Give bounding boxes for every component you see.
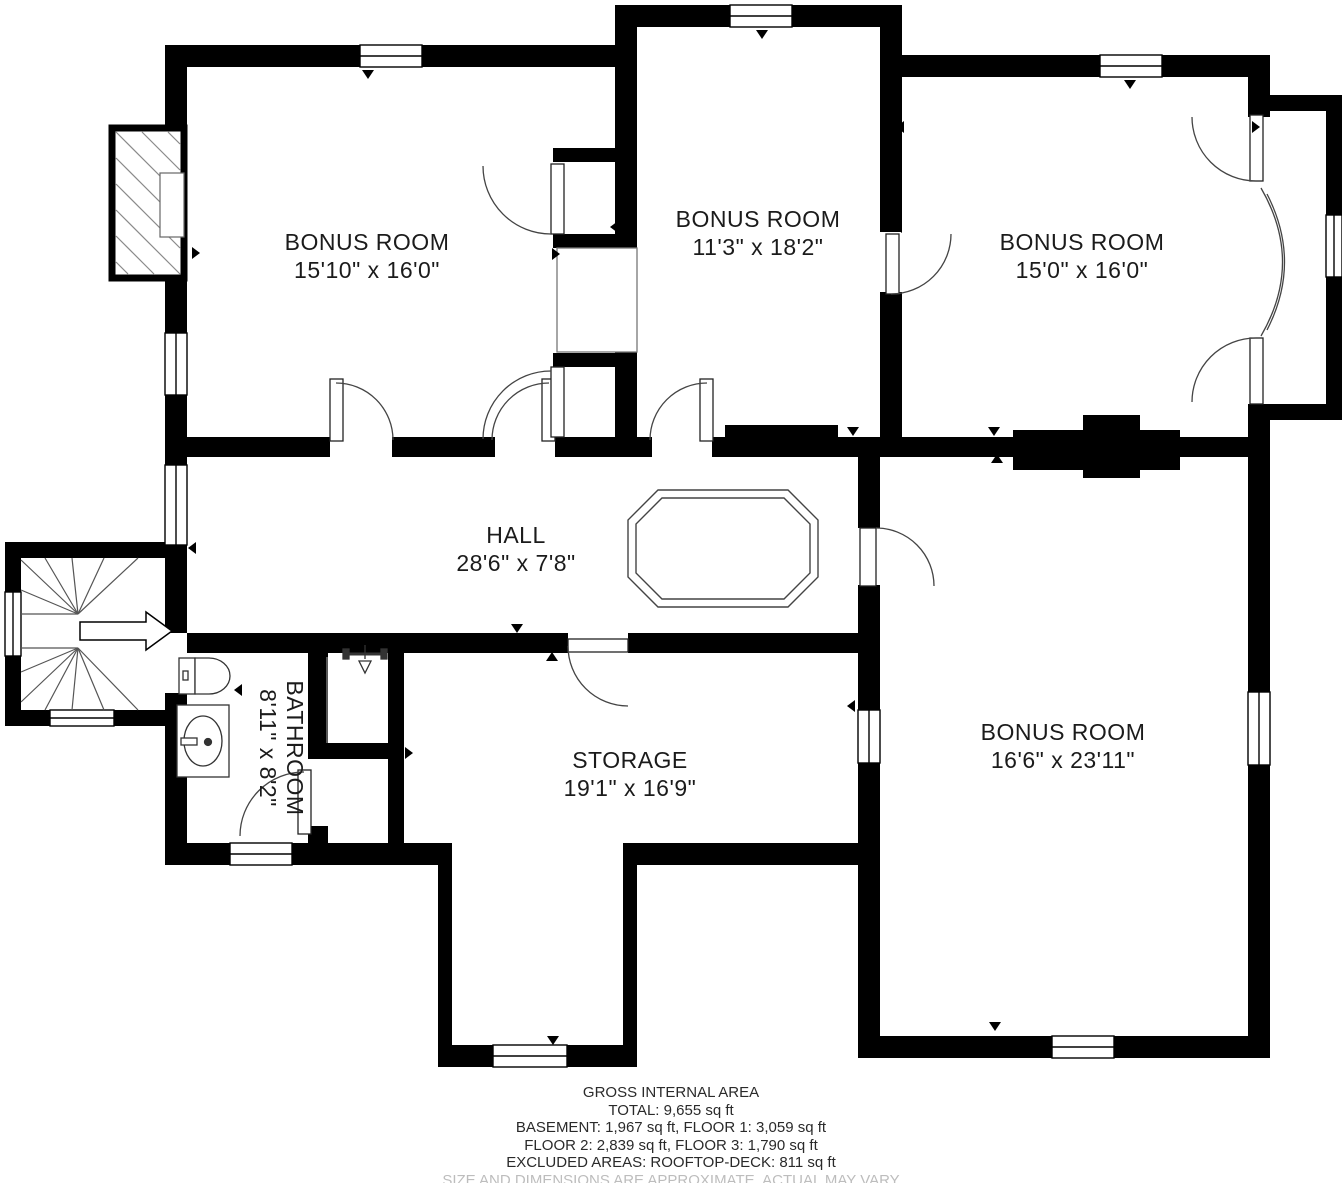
window [1326,215,1342,277]
area-basement-floor1: BASEMENT: 1,967 sq ft, FLOOR 1: 3,059 sq… [0,1119,1342,1137]
door-swing-arc [876,528,934,586]
door-leaf [886,234,899,294]
fireplace-firebox [160,173,184,237]
toilet [179,658,230,694]
door-leaf [568,639,628,652]
door-swing-arc [336,383,393,440]
area-floor2-floor3: FLOOR 2: 2,839 sq ft, FLOOR 3: 1,790 sq … [0,1137,1342,1155]
window [5,592,21,656]
window [165,333,187,395]
room-label: BONUS ROOM [676,206,841,232]
window [165,465,187,545]
room-dims: 16'6" x 23'11" [991,747,1135,773]
room-dims: 11'3" x 18'2" [693,234,824,260]
window [730,5,792,27]
room-label: STORAGE [572,747,688,773]
room-dims: 19'1" x 16'9" [564,775,697,801]
window [230,843,292,865]
chimney [112,128,184,278]
shower [327,645,387,743]
door-leaf [860,528,876,586]
window [1052,1036,1114,1058]
door-leaf [700,379,713,441]
door-swing-arc [492,383,549,440]
door-swing-arc [568,646,628,706]
door-swing-arc [1192,338,1256,402]
floorplan-page: BONUS ROOM 15'10" x 16'0" BONUS ROOM 11'… [0,0,1342,1183]
room-dims: 8'11" x 8'2" [255,689,281,807]
sink [177,705,229,777]
room-label: BONUS ROOM [285,229,450,255]
staircase [21,558,172,710]
closet-recess [557,248,637,352]
door-leaf [551,367,564,437]
door-leaf [551,164,564,234]
door-swing-arc [483,166,551,234]
window [360,45,422,67]
room-label: HALL [486,522,546,548]
door-swing-arc [891,234,951,294]
window [50,710,114,726]
area-summary-title: GROSS INTERNAL AREA [0,1084,1342,1102]
window [493,1045,567,1067]
door-swing-arc [650,383,707,440]
octagon-opening [628,490,818,607]
curved-wall-arc [1261,188,1283,336]
area-total: TOTAL: 9,655 sq ft [0,1102,1342,1120]
area-disclaimer: SIZE AND DIMENSIONS ARE APPROXIMATE, ACT… [0,1172,1342,1183]
room-label: BATHROOM [282,680,308,815]
room-dims: 15'10" x 16'0" [294,257,440,283]
area-excluded: EXCLUDED AREAS: ROOFTOP-DECK: 811 sq ft [0,1154,1342,1172]
window [1100,55,1162,77]
window [858,710,880,763]
room-dims: 28'6" x 7'8" [456,550,575,576]
door-leaf [330,379,343,441]
stair-direction-arrow [80,612,172,650]
door-swing-arc [1192,117,1256,181]
floorplan-svg: BONUS ROOM 15'10" x 16'0" BONUS ROOM 11'… [0,0,1342,1075]
window [1248,692,1270,765]
area-summary: GROSS INTERNAL AREA TOTAL: 9,655 sq ft B… [0,1084,1342,1183]
door-leaf [1250,338,1263,404]
room-dims: 15'0" x 16'0" [1016,257,1149,283]
room-label: BONUS ROOM [1000,229,1165,255]
room-label: BONUS ROOM [981,719,1146,745]
